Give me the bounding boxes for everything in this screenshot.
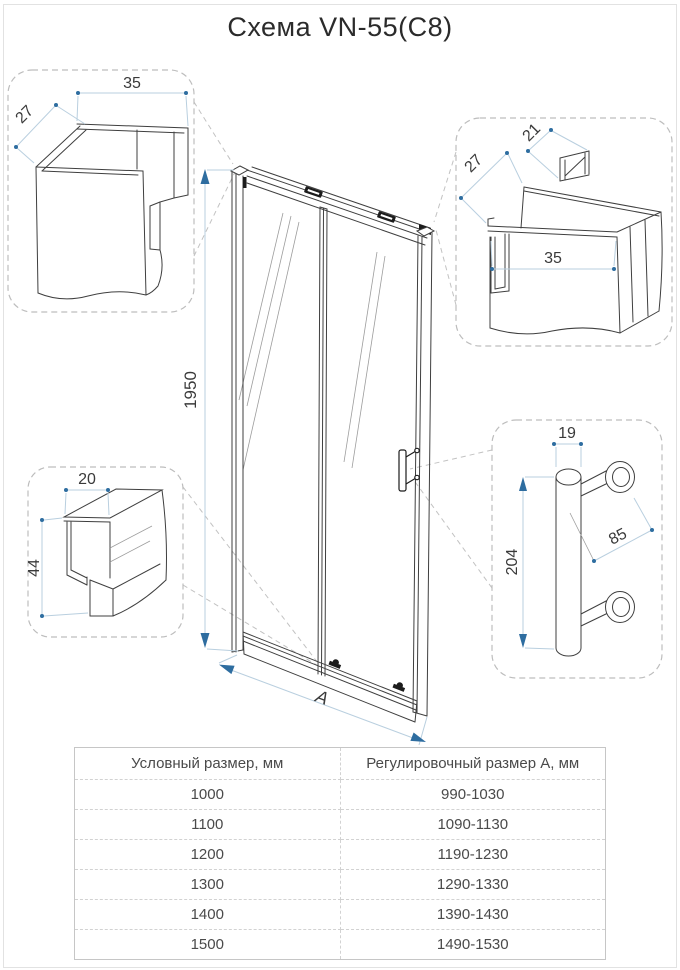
dim-label-1950: 1950 bbox=[181, 371, 200, 409]
adjustable-size-cell: 1190-1230 bbox=[340, 840, 606, 870]
table-row: 1200 1190-1230 bbox=[75, 840, 606, 870]
dim-label-handle-204: 204 bbox=[504, 549, 521, 576]
schematic-page: Схема VN-55(C8) bbox=[0, 0, 680, 970]
dim-label-top-21: 21 bbox=[520, 120, 545, 145]
table-header-adjustable-size: Регулировочный размер А, мм bbox=[340, 748, 606, 780]
table-row: 1300 1290-1330 bbox=[75, 870, 606, 900]
handle-drawing bbox=[556, 462, 635, 657]
bottom-roller bbox=[392, 680, 406, 691]
detail-top-profile: 27 21 35 bbox=[456, 118, 672, 346]
nominal-size-cell: 1500 bbox=[75, 930, 341, 960]
adjustable-size-cell: 1490-1530 bbox=[340, 930, 606, 960]
table-header-row: Условный размер, мм Регулировочный разме… bbox=[75, 748, 606, 780]
nominal-size-cell: 1400 bbox=[75, 900, 341, 930]
dim-label-a: A bbox=[312, 686, 331, 709]
nominal-size-cell: 1000 bbox=[75, 780, 341, 810]
main-door-view: 1950 A bbox=[181, 166, 434, 745]
table-row: 1000 990-1030 bbox=[75, 780, 606, 810]
nominal-size-cell: 1200 bbox=[75, 840, 341, 870]
dimension-door-height: 1950 bbox=[181, 169, 238, 651]
adjustable-size-cell: 990-1030 bbox=[340, 780, 606, 810]
dim-label-bottom-44: 44 bbox=[26, 559, 43, 577]
detail-wall-profile: 35 27 bbox=[8, 70, 194, 312]
adjustable-size-cell: 1290-1330 bbox=[340, 870, 606, 900]
dim-label-top-35: 35 bbox=[544, 250, 562, 267]
right-stile bbox=[413, 224, 434, 716]
detail-handle: 19 204 85 bbox=[492, 420, 662, 678]
top-profile-dimensions: 27 21 35 bbox=[459, 120, 616, 271]
dim-label-wall-27: 27 bbox=[13, 102, 38, 127]
dim-label-handle-85: 85 bbox=[606, 525, 630, 548]
table-row: 1400 1390-1430 bbox=[75, 900, 606, 930]
dim-label-top-27: 27 bbox=[462, 151, 487, 176]
wall-profile-drawing bbox=[36, 124, 188, 299]
nominal-size-cell: 1100 bbox=[75, 810, 341, 840]
table-header-nominal-size: Условный размер, мм bbox=[75, 748, 341, 780]
adjustable-size-cell: 1090-1130 bbox=[340, 810, 606, 840]
adjustable-size-cell: 1390-1430 bbox=[340, 900, 606, 930]
nominal-size-cell: 1300 bbox=[75, 870, 341, 900]
wall-profile-dimensions: 35 27 bbox=[13, 75, 188, 163]
bottom-profile-dimensions: 20 44 bbox=[26, 471, 110, 618]
bottom-profile-drawing bbox=[64, 489, 167, 616]
dimension-door-width: A bbox=[219, 655, 427, 745]
dim-label-bottom-20: 20 bbox=[78, 471, 96, 488]
detail-bottom-profile: 20 44 bbox=[26, 467, 183, 637]
size-table: Условный размер, мм Регулировочный разме… bbox=[74, 747, 606, 960]
middle-stile bbox=[318, 207, 327, 676]
table-row: 1100 1090-1130 bbox=[75, 810, 606, 840]
top-profile-drawing bbox=[488, 151, 662, 334]
table-row: 1500 1490-1530 bbox=[75, 930, 606, 960]
callout-leaders bbox=[183, 102, 492, 667]
bottom-rail bbox=[243, 632, 417, 722]
top-rail bbox=[247, 167, 430, 245]
dim-label-handle-19: 19 bbox=[558, 425, 576, 442]
schematic-drawing: 1950 A bbox=[0, 0, 680, 745]
dim-label-wall-35: 35 bbox=[123, 75, 141, 92]
left-stile bbox=[231, 166, 248, 652]
